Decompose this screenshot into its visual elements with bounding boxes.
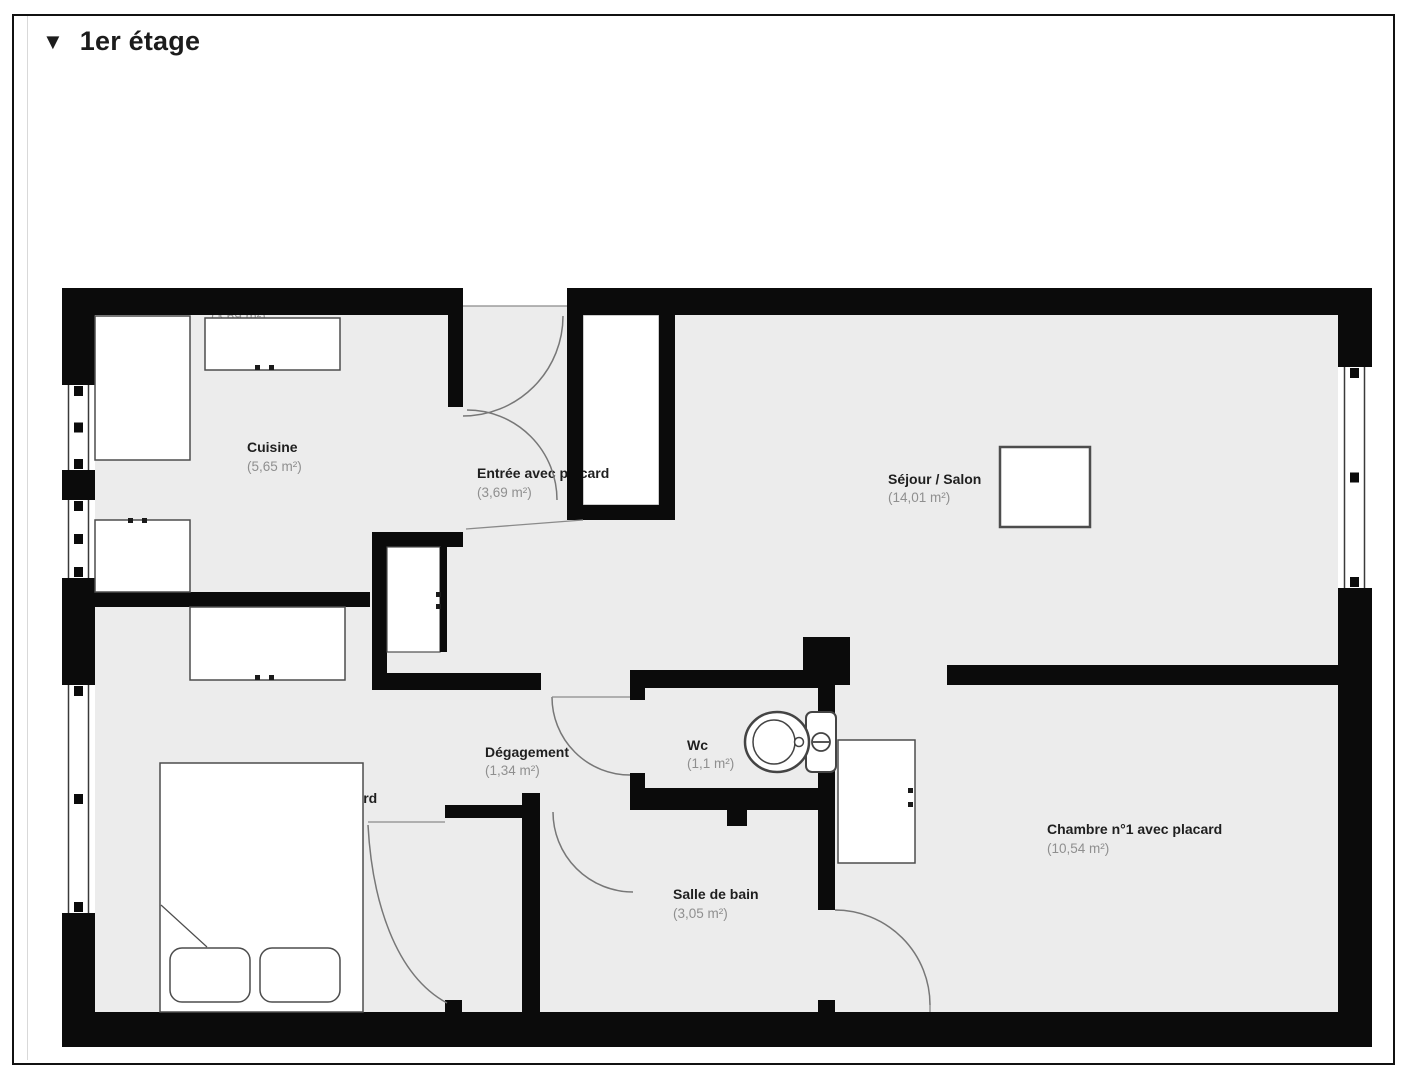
room-label-cuisine: Cuisine bbox=[247, 439, 298, 455]
room-size-degagement: (1,34 m²) bbox=[485, 763, 540, 778]
room-label-entree: Entrée avec placard bbox=[477, 465, 609, 481]
floor-plan: (3,69 m²) Cuisine (5,65 m²) Entrée avec … bbox=[0, 0, 1416, 1080]
room-label-chambre1: Chambre n°1 avec placard bbox=[1047, 821, 1222, 837]
room-label-salle-de-bain: Salle de bain bbox=[673, 886, 759, 902]
toilet-icon bbox=[745, 712, 836, 772]
room-size-cuisine: (5,65 m²) bbox=[247, 459, 302, 474]
room-label-degagement: Dégagement bbox=[485, 744, 569, 760]
room-size-entree: (3,69 m²) bbox=[477, 485, 532, 500]
room-label-wc: Wc bbox=[687, 737, 708, 753]
room-label-sejour: Séjour / Salon bbox=[888, 471, 981, 487]
room-size-wc: (1,1 m²) bbox=[687, 756, 734, 771]
room-size-salle-de-bain: (3,05 m²) bbox=[673, 906, 728, 921]
room-size-sejour: (14,01 m²) bbox=[888, 490, 950, 505]
room-size-chambre1: (10,54 m²) bbox=[1047, 841, 1109, 856]
